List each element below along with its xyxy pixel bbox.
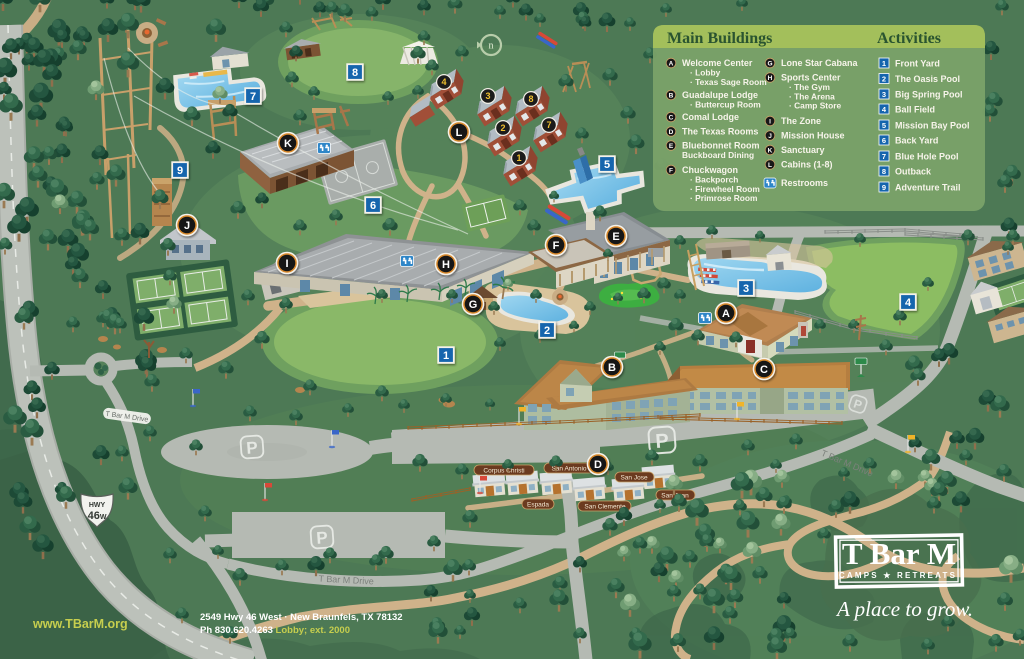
svg-text:P: P — [655, 430, 670, 453]
svg-text:The Oasis Pool: The Oasis Pool — [895, 74, 960, 84]
svg-text:Ph 830.620.4263 Lobby; ext. 2: Ph 830.620.4263 Lobby; ext. 2000 — [200, 625, 350, 636]
svg-text:7: 7 — [250, 91, 256, 103]
svg-text:E: E — [669, 143, 674, 150]
svg-text:G: G — [767, 60, 772, 67]
svg-text:T Bar M: T Bar M — [842, 536, 956, 571]
svg-text:· Camp Store: · Camp Store — [789, 101, 841, 111]
svg-text:Ball Field: Ball Field — [895, 104, 935, 114]
svg-text:3: 3 — [743, 283, 749, 295]
svg-text:4: 4 — [441, 77, 446, 87]
svg-text:3: 3 — [485, 91, 490, 101]
svg-text:Cabins (1-8): Cabins (1-8) — [781, 160, 833, 170]
svg-text:Comal Lodge: Comal Lodge — [682, 112, 739, 122]
svg-text:8: 8 — [528, 94, 533, 104]
svg-text:· Texas Sage Room: · Texas Sage Room — [690, 77, 767, 87]
svg-text:C: C — [669, 114, 674, 121]
svg-text:Buckboard Dining: Buckboard Dining — [682, 150, 754, 160]
svg-text:I: I — [285, 258, 288, 270]
svg-text:· Buttercup Room: · Buttercup Room — [690, 100, 761, 110]
svg-text:G: G — [469, 299, 478, 311]
svg-text:The Texas Rooms: The Texas Rooms — [682, 127, 758, 137]
svg-text:L: L — [456, 127, 463, 139]
svg-text:K: K — [284, 138, 292, 150]
svg-text:Main Buildings: Main Buildings — [667, 30, 772, 47]
svg-text:A: A — [669, 60, 674, 67]
svg-text:2: 2 — [882, 74, 886, 83]
svg-text:J: J — [184, 220, 190, 232]
svg-text:2549 Hwy 46 West · New Braunfe: 2549 Hwy 46 West · New Braunfels, TX 781… — [200, 612, 403, 623]
svg-text:7: 7 — [546, 120, 551, 130]
svg-text:Corpus Christi: Corpus Christi — [483, 468, 524, 475]
svg-text:Restrooms: Restrooms — [781, 178, 828, 188]
svg-text:6: 6 — [882, 136, 886, 145]
svg-text:B: B — [669, 92, 674, 99]
svg-text:Big Spring Pool: Big Spring Pool — [895, 89, 963, 99]
svg-text:8: 8 — [882, 167, 886, 176]
svg-text:A place to grow.: A place to grow. — [835, 597, 973, 621]
svg-text:Blue Hole Pool: Blue Hole Pool — [895, 151, 959, 161]
svg-text:HWY: HWY — [89, 502, 106, 509]
svg-text:www.TBarM.org: www.TBarM.org — [32, 617, 128, 631]
svg-text:4: 4 — [905, 297, 912, 309]
svg-text:K: K — [768, 147, 773, 154]
svg-text:Lone Star Cabana: Lone Star Cabana — [781, 58, 859, 68]
svg-text:L: L — [768, 162, 772, 169]
svg-text:9: 9 — [882, 183, 886, 192]
svg-text:D: D — [669, 129, 674, 136]
svg-text:I: I — [769, 118, 771, 125]
svg-text:Outback: Outback — [895, 166, 932, 176]
svg-text:E: E — [612, 231, 619, 243]
svg-text:Espada: Espada — [527, 502, 549, 509]
svg-text:7: 7 — [882, 152, 886, 161]
svg-text:H: H — [768, 75, 773, 82]
svg-text:C: C — [760, 364, 768, 376]
svg-text:Mission Bay Pool: Mission Bay Pool — [895, 120, 970, 130]
svg-text:1: 1 — [516, 153, 521, 163]
svg-text:6: 6 — [370, 200, 376, 212]
svg-text:2: 2 — [500, 123, 505, 133]
svg-text:n: n — [489, 41, 494, 52]
svg-text:Front Yard: Front Yard — [895, 58, 940, 68]
svg-text:5: 5 — [604, 159, 610, 171]
svg-text:3: 3 — [882, 90, 886, 99]
svg-text:5: 5 — [882, 121, 886, 130]
svg-text:1: 1 — [443, 350, 449, 362]
svg-text:F: F — [553, 240, 560, 252]
svg-text:A: A — [722, 308, 730, 320]
svg-text:P: P — [246, 438, 259, 458]
svg-text:J: J — [768, 133, 772, 140]
svg-text:9: 9 — [177, 165, 183, 177]
svg-text:The Zone: The Zone — [781, 116, 821, 126]
svg-text:1: 1 — [882, 59, 886, 68]
svg-text:Adventure Trail: Adventure Trail — [895, 182, 961, 192]
svg-text:CAMPS ★ RETREATS: CAMPS ★ RETREATS — [839, 571, 957, 580]
svg-text:H: H — [442, 259, 450, 271]
svg-text:· Primrose Room: · Primrose Room — [690, 193, 757, 203]
svg-text:P: P — [316, 528, 329, 548]
svg-text:Back Yard: Back Yard — [895, 135, 938, 145]
svg-text:F: F — [669, 167, 673, 174]
svg-text:San Jose: San Jose — [620, 475, 647, 482]
svg-text:D: D — [594, 459, 602, 471]
svg-text:Sanctuary: Sanctuary — [781, 145, 825, 155]
svg-text:2: 2 — [544, 325, 550, 337]
svg-text:B: B — [608, 362, 616, 374]
svg-text:8: 8 — [352, 67, 358, 79]
svg-text:Mission House: Mission House — [781, 131, 845, 141]
svg-text:Activities: Activities — [877, 30, 941, 47]
